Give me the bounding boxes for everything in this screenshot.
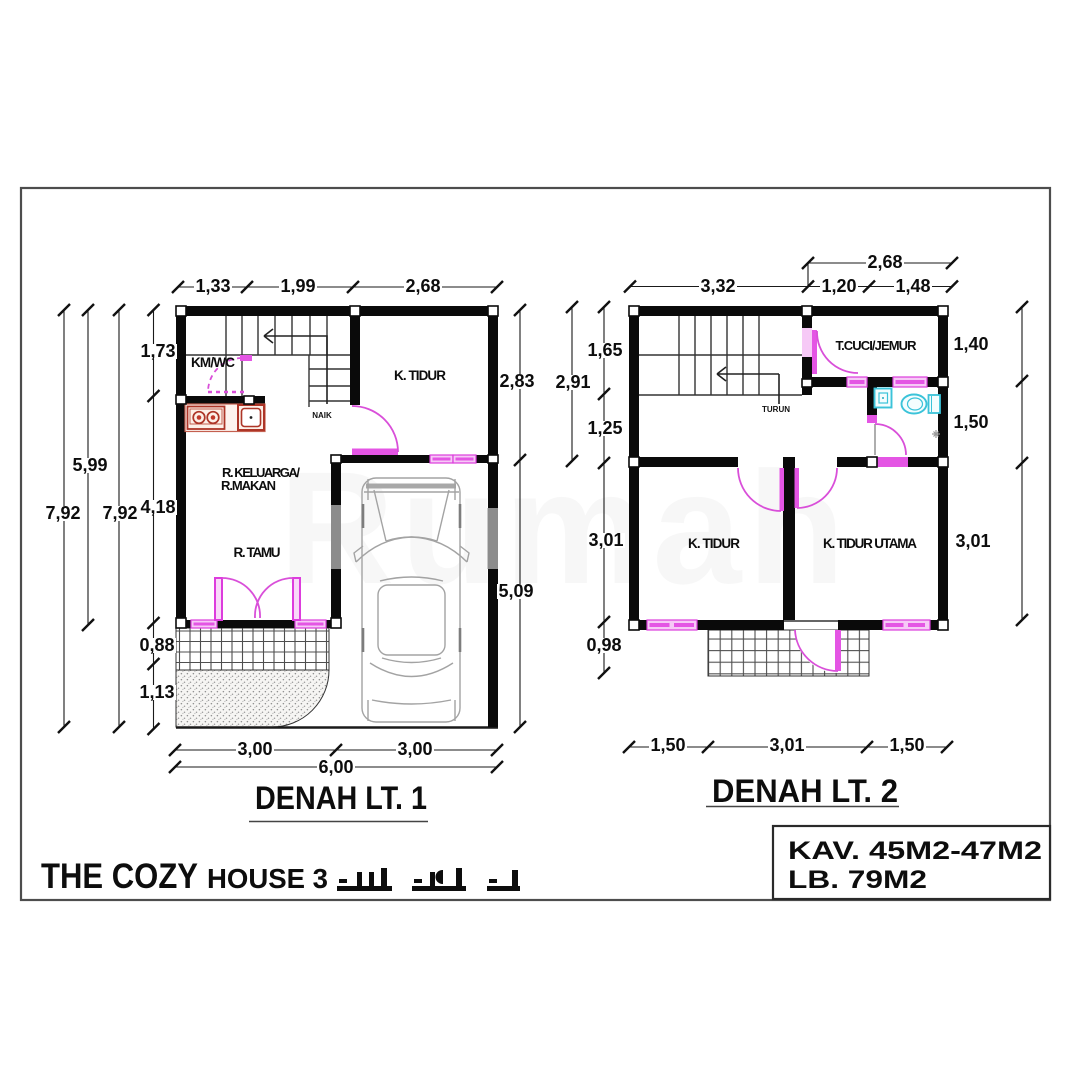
svg-text:K. TIDUR: K. TIDUR [688, 536, 740, 551]
svg-text:1,50: 1,50 [650, 735, 685, 755]
svg-text:0,98: 0,98 [586, 635, 621, 655]
svg-text:2,83: 2,83 [499, 371, 534, 391]
svg-text:7,92: 7,92 [45, 503, 80, 523]
svg-text:DENAH LT. 2: DENAH LT. 2 [712, 773, 898, 809]
svg-text:T.CUCI/JEMUR: T.CUCI/JEMUR [836, 338, 918, 353]
svg-text:6,00: 6,00 [318, 757, 353, 777]
svg-text:LB. 79M2: LB. 79M2 [788, 866, 927, 894]
svg-text:TURUN: TURUN [762, 405, 790, 414]
svg-text:2,68: 2,68 [405, 276, 440, 296]
svg-text:7,92: 7,92 [102, 503, 137, 523]
svg-text:4,18: 4,18 [140, 497, 175, 517]
svg-text:1,73: 1,73 [140, 341, 175, 361]
svg-text:2,91: 2,91 [555, 372, 590, 392]
svg-text:3,01: 3,01 [769, 735, 804, 755]
svg-text:THE COZY: THE COZY [41, 857, 198, 896]
svg-text:3,01: 3,01 [955, 531, 990, 551]
svg-text:3,01: 3,01 [588, 530, 623, 550]
svg-text:KM/WC: KM/WC [191, 355, 235, 370]
svg-text:1,50: 1,50 [889, 735, 924, 755]
svg-text:3,00: 3,00 [397, 739, 432, 759]
svg-text:0,88: 0,88 [139, 635, 174, 655]
svg-text:R. TAMU: R. TAMU [234, 545, 281, 560]
svg-text:3,32: 3,32 [700, 276, 735, 296]
svg-text:1,33: 1,33 [195, 276, 230, 296]
svg-text:K. TIDUR UTAMA: K. TIDUR UTAMA [823, 536, 917, 551]
svg-text:2,68: 2,68 [867, 252, 902, 272]
svg-text:5,09: 5,09 [498, 581, 533, 601]
svg-text:5,99: 5,99 [72, 455, 107, 475]
svg-text:1,50: 1,50 [953, 412, 988, 432]
svg-text:1,25: 1,25 [587, 418, 622, 438]
svg-text:K. TIDUR: K. TIDUR [394, 368, 446, 383]
svg-text:KAV. 45M2-47M2: KAV. 45M2-47M2 [788, 837, 1042, 865]
svg-text:HOUSE 3: HOUSE 3 [207, 863, 328, 894]
svg-text:1,65: 1,65 [587, 340, 622, 360]
svg-text:1,13: 1,13 [139, 682, 174, 702]
svg-text:DENAH LT. 1: DENAH LT. 1 [255, 780, 427, 816]
svg-text:NAIK: NAIK [312, 411, 332, 420]
svg-text:1,40: 1,40 [953, 334, 988, 354]
svg-text:Rumah: Rumah [279, 438, 851, 617]
svg-text:1,20: 1,20 [821, 276, 856, 296]
svg-text:R.MAKAN: R.MAKAN [221, 478, 276, 493]
svg-text:1,48: 1,48 [895, 276, 930, 296]
svg-text:1,99: 1,99 [280, 276, 315, 296]
svg-text:3,00: 3,00 [237, 739, 272, 759]
